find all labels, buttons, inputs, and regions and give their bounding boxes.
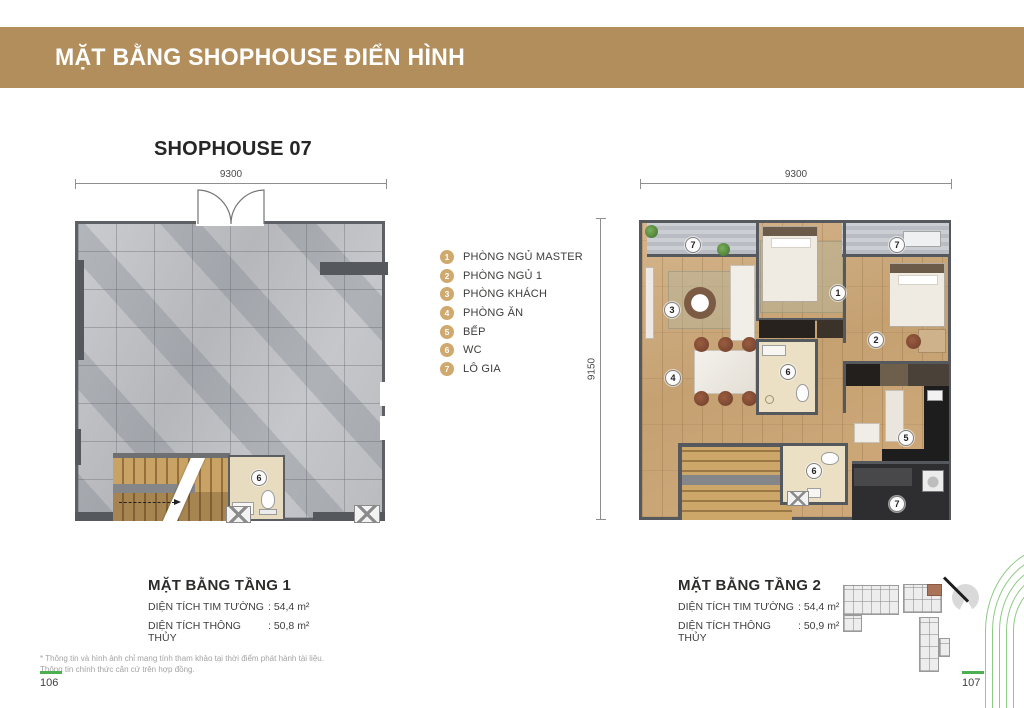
plant-icon [645,225,658,238]
floor1-plan: 6 [75,221,385,521]
wall-segment [843,223,846,343]
toilet-tank [259,509,277,515]
chair-icon [742,337,757,352]
footnote-line1: * Thông tin và hình ảnh chỉ mang tính th… [40,653,324,664]
shophouse-title: SHOPHOUSE 07 [154,138,312,161]
compass-icon [952,584,979,611]
cabinet [817,320,843,338]
room-badge: 2 [868,332,884,348]
room-badge: 6 [806,463,822,479]
legend-item: 1 PHÒNG NGỦ MASTER [440,248,583,267]
kitchen-appliance-row [846,364,949,386]
shelf [854,468,912,486]
legend-label: PHÒNG ĂN [463,307,523,319]
area-value: : 50,9 m² [798,620,839,644]
area-label: DIỆN TÍCH THÔNG THỦY [148,620,268,644]
door-opening [380,382,385,406]
area-value: : 54,4 m² [798,601,839,613]
keyplan-block [843,615,862,632]
legend-number-badge: 1 [440,250,454,264]
legend-label: LÔ GIA [463,363,501,375]
toilet-icon [821,452,839,465]
washing-machine-icon [922,470,944,492]
room-badge: 4 [665,370,681,386]
sink-icon [762,345,786,356]
legend-number-badge: 7 [440,362,454,376]
legend-label: PHÒNG KHÁCH [463,288,547,300]
double-door-icon [196,186,266,224]
room-badge: 7 [889,496,905,512]
plant-icon [717,243,730,256]
legend-item: 4 PHÒNG ĂN [440,304,583,323]
floor1-width-dimension: 9300 [75,183,387,184]
room-badge: 7 [685,237,701,253]
floor1-info-title: MẶT BẰNG TẦNG 1 [148,577,478,594]
area-row: DIỆN TÍCH THÔNG THỦY : 50,8 m² [148,620,478,644]
coffee-table-icon [684,287,716,319]
stair-direction-arrow [119,502,175,503]
room-badge-wc: 6 [251,470,267,486]
sink-icon [807,488,821,498]
legend-label: WC [463,344,482,356]
wall-segment [75,260,84,360]
floor1-staircase [113,453,230,521]
legend-number-badge: 4 [440,306,454,320]
ac-unit-icon [903,231,941,247]
legend-number-badge: 6 [440,343,454,357]
bedroom2-bed [889,263,945,327]
sofa-icon [730,265,755,341]
legend-label: BẾP [463,326,486,338]
master-bed [762,226,818,302]
footnote-line2: Thông tin chính thức căn cứ trên hợp đồn… [40,664,324,675]
shower-drain-icon [765,395,774,404]
room-badge: 7 [889,237,905,253]
page-number-rule [962,671,984,674]
area-label: DIỆN TÍCH THÔNG THỦY [678,620,798,644]
page-number-right-value: 107 [962,677,980,689]
page-number-left: 106 [40,671,62,689]
area-label: DIỆN TÍCH TIM TƯỜNG [148,601,268,613]
door-opening [380,416,385,440]
area-value: : 54,4 m² [268,601,309,613]
floor1-width-dimension-label: 9300 [216,169,246,180]
keyplan [843,583,955,675]
legend-item: 3 PHÒNG KHÁCH [440,285,583,304]
keyplan-block [919,617,939,672]
legend-item: 6 WC [440,341,583,360]
page-number-left-value: 106 [40,677,58,689]
seat [854,423,880,443]
legend-label: PHÒNG NGỦ MASTER [463,251,583,263]
chair-icon [694,337,709,352]
area-row: DIỆN TÍCH TIM TƯỜNG : 54,4 m² [148,601,478,613]
room-badge: 3 [664,302,680,318]
legend-item: 5 BẾP [440,322,583,341]
chair-icon [718,337,733,352]
area-value: : 50,8 m² [268,620,309,644]
legend-number-badge: 5 [440,325,454,339]
room-legend: 1 PHÒNG NGỦ MASTER 2 PHÒNG NGỦ 1 3 PHÒNG… [440,248,583,378]
floor2-width-dimension: 9300 [640,183,952,184]
floor1-info: MẶT BẰNG TẦNG 1 DIỆN TÍCH TIM TƯỜNG : 54… [148,577,478,644]
legend-number-badge: 2 [440,269,454,283]
chair-icon [694,391,709,406]
wall-segment [320,262,388,275]
area-label: DIỆN TÍCH TIM TƯỜNG [678,601,798,613]
keyplan-block [843,585,899,615]
wall-segment [75,429,81,465]
tv-console [645,267,654,339]
floor2-staircase [678,443,792,520]
room-badge: 5 [898,430,914,446]
floor2-height-dimension: 9150 [600,218,601,520]
legend-number-badge: 3 [440,287,454,301]
stair-landing [682,475,792,485]
floor2-height-dimension-label: 9150 [587,354,598,384]
shaft-hatch [787,491,809,506]
floor2-width-dimension-label: 9300 [781,169,811,180]
footnote: * Thông tin và hình ảnh chỉ mang tính th… [40,653,324,675]
wardrobe [759,320,815,338]
wall-segment [756,223,759,320]
desk [918,329,946,353]
page-number-rule [40,671,62,674]
chair-icon [906,334,921,349]
room-badge: 6 [780,364,796,380]
floor2-plan: 7 1 7 3 2 4 6 5 6 7 [639,220,951,520]
sink-icon [927,390,943,401]
legend-item: 7 LÔ GIA [440,360,583,379]
page-banner: MẶT BẰNG SHOPHOUSE ĐIỂN HÌNH [0,27,1024,88]
shaft-hatch [226,506,251,523]
balcony-left [647,223,759,257]
room-badge: 1 [830,285,846,301]
keyplan-block [939,638,950,657]
toilet-icon [796,384,809,402]
keyplan-highlighted-unit [927,584,942,596]
page-number-right: 107 [962,671,984,689]
chair-icon [718,391,733,406]
chair-icon [742,391,757,406]
toilet-icon [261,490,275,509]
banner-title: MẶT BẰNG SHOPHOUSE ĐIỂN HÌNH [55,44,465,72]
dining-table [694,350,756,394]
legend-label: PHÒNG NGỦ 1 [463,270,542,282]
brochure-page: MẶT BẰNG SHOPHOUSE ĐIỂN HÌNH SHOPHOUSE 0… [0,0,1024,708]
legend-item: 2 PHÒNG NGỦ 1 [440,267,583,286]
shaft-hatch [354,505,380,523]
